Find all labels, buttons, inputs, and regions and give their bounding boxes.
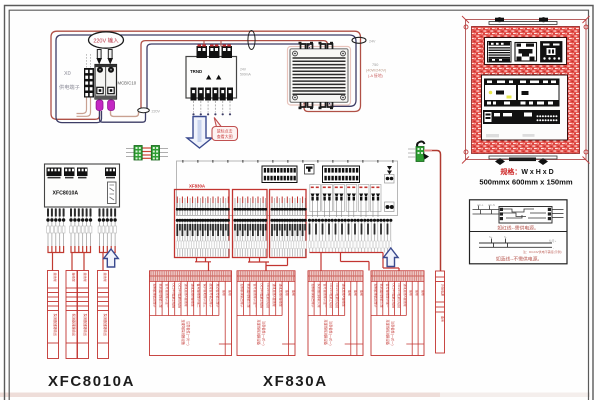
svg-text:如红线--需供电源。: 如红线--需供电源。 xyxy=(497,224,539,231)
svg-text:DC24V电源负极接: DC24V电源负极接 xyxy=(266,284,271,309)
svg-text:注：DC24V供电不需接(示例): 注：DC24V供电不需接(示例) xyxy=(523,249,562,254)
svg-text:至现场探测器设备: 至现场探测器设备 xyxy=(386,320,391,346)
svg-text:备用: 备用 xyxy=(441,316,446,322)
svg-text:备用: 备用 xyxy=(292,290,296,296)
svg-text:探测器回路输入端: 探测器回路输入端 xyxy=(380,284,385,308)
svg-text:220V 输入: 220V 输入 xyxy=(93,37,119,45)
svg-text:通讯总线A接线端: 通讯总线A接线端 xyxy=(403,284,408,307)
svg-text:启动信号输入端子: 启动信号输入端子 xyxy=(216,284,221,308)
svg-text:外接电源: 外接电源 xyxy=(441,284,446,296)
svg-text:DC24V电源正极接: DC24V电源正极接 xyxy=(171,284,176,309)
svg-text:信号+: 信号+ xyxy=(549,239,557,243)
svg-text:通讯总线A接线端: 通讯总线A接线端 xyxy=(184,284,189,307)
svg-text:通讯总线B接线端: 通讯总线B接线端 xyxy=(279,284,284,307)
svg-text:供电端子: 供电端子 xyxy=(59,83,80,91)
svg-text:探测器回路输出: 探测器回路输出 xyxy=(72,314,77,336)
svg-text:注意极性(一对一): 注意极性(一对一) xyxy=(186,321,191,345)
svg-text:AC-L: AC-L xyxy=(477,203,484,207)
svg-text:500mmx 600mm x 150mm: 500mmx 600mm x 150mm xyxy=(479,178,573,187)
svg-text:注意极性(一对一): 注意极性(一对一) xyxy=(328,321,333,345)
svg-text:探测器回路输出: 探测器回路输出 xyxy=(53,314,58,336)
svg-text:信号接线端子组一: 信号接线端子组一 xyxy=(385,284,390,308)
svg-text:至现场探测器设备: 至现场探测器设备 xyxy=(181,320,186,346)
svg-text:X0: X0 xyxy=(64,71,71,77)
svg-text:故障信号输出端子: 故障信号输出端子 xyxy=(209,284,214,308)
svg-text:DC24V电源负极接: DC24V电源负极接 xyxy=(335,284,340,309)
svg-text:AC-N: AC-N xyxy=(488,203,495,207)
svg-text:备用接线端子组二: 备用接线端子组二 xyxy=(197,284,202,308)
svg-text:注意极性(一对一): 注意极性(一对一) xyxy=(262,321,267,345)
svg-text:24V: 24V xyxy=(369,39,376,43)
svg-text:查看大图: 查看大图 xyxy=(217,133,233,139)
svg-text:探测器回路输入端: 探测器回路输入端 xyxy=(246,284,251,308)
svg-text:控制模块输出端子: 控制模块输出端子 xyxy=(152,284,157,308)
svg-text:备用: 备用 xyxy=(354,290,358,296)
svg-text:通讯总线B接线端: 通讯总线B接线端 xyxy=(190,284,195,307)
svg-text:信号接线端子组一: 信号接线端子组一 xyxy=(323,284,328,308)
svg-text:备用: 备用 xyxy=(360,290,364,296)
svg-text:DC24V电源负极接: DC24V电源负极接 xyxy=(397,284,402,309)
svg-text:S-: S- xyxy=(504,235,507,239)
svg-text:备用: 备用 xyxy=(222,290,226,296)
svg-text:保护接地端子组三: 保护接地端子组三 xyxy=(203,284,208,308)
svg-text:XFC8010A: XFC8010A xyxy=(48,373,135,390)
svg-text:备用: 备用 xyxy=(348,290,352,296)
svg-text:备用: 备用 xyxy=(415,290,419,296)
svg-text:MCB/C10: MCB/C10 xyxy=(118,81,137,86)
svg-text:XFC8010A: XFC8010A xyxy=(53,191,79,197)
svg-text:信号接线端子组一: 信号接线端子组一 xyxy=(253,284,258,308)
svg-text:XF830A: XF830A xyxy=(189,184,206,189)
svg-text:备用: 备用 xyxy=(285,290,289,296)
svg-text:DC24V电源负极接: DC24V电源负极接 xyxy=(178,284,183,309)
svg-text:探测器回路输出: 探测器回路输出 xyxy=(103,314,108,336)
svg-text:接线端: 接线端 xyxy=(72,273,77,282)
svg-text:DC24V电源正极接: DC24V电源正极接 xyxy=(259,284,264,309)
svg-text:规格：W x H x D: 规格：W x H x D xyxy=(500,167,553,176)
svg-text:24V: 24V xyxy=(240,68,247,72)
svg-text:接线端: 接线端 xyxy=(103,273,108,282)
svg-text:750: 750 xyxy=(372,63,378,67)
svg-text:至现场探测器设备: 至现场探测器设备 xyxy=(323,320,328,346)
svg-text:鼠标点击: 鼠标点击 xyxy=(217,128,233,134)
svg-text:500mA: 500mA xyxy=(240,73,251,77)
svg-text:DC24V电源正极接: DC24V电源正极接 xyxy=(391,284,396,309)
svg-text:XF830A: XF830A xyxy=(263,373,328,390)
svg-text:接线端: 接线端 xyxy=(83,273,88,282)
svg-text:至现场探测器设备: 至现场探测器设备 xyxy=(257,320,262,346)
svg-text:备用: 备用 xyxy=(409,290,413,296)
svg-text:TRND: TRND xyxy=(190,69,202,74)
svg-text:通讯总线A接线端: 通讯总线A接线端 xyxy=(341,284,346,307)
svg-text:控制模块输出端子: 控制模块输出端子 xyxy=(311,284,316,308)
svg-text:探测器回路输入端: 探测器回路输入端 xyxy=(317,284,322,308)
svg-text:控制模块输出端子: 控制模块输出端子 xyxy=(240,284,245,308)
svg-text:220V: 220V xyxy=(152,109,161,113)
svg-text:S+: S+ xyxy=(489,235,493,239)
svg-text:探测器回路输出: 探测器回路输出 xyxy=(83,314,88,336)
svg-text:注意极性(一对一): 注意极性(一对一) xyxy=(391,321,396,345)
svg-text:探测器回路输入端: 探测器回路输入端 xyxy=(159,284,164,308)
svg-text:(-A 接地): (-A 接地) xyxy=(368,73,384,78)
svg-text:如蓝线--不需供电源。: 如蓝线--不需供电源。 xyxy=(496,256,542,263)
svg-text:备用: 备用 xyxy=(228,290,232,296)
svg-text:DC24V电源正极接: DC24V电源正极接 xyxy=(329,284,334,309)
svg-text:(40W/240V): (40W/240V) xyxy=(366,69,387,73)
svg-text:通讯总线A接线端: 通讯总线A接线端 xyxy=(272,284,277,307)
svg-text:信号接线端子组一: 信号接线端子组一 xyxy=(165,284,170,308)
svg-text:备用: 备用 xyxy=(421,290,425,296)
svg-text:接线端: 接线端 xyxy=(53,273,58,282)
svg-text:控制模块输出端子: 控制模块输出端子 xyxy=(374,284,379,308)
